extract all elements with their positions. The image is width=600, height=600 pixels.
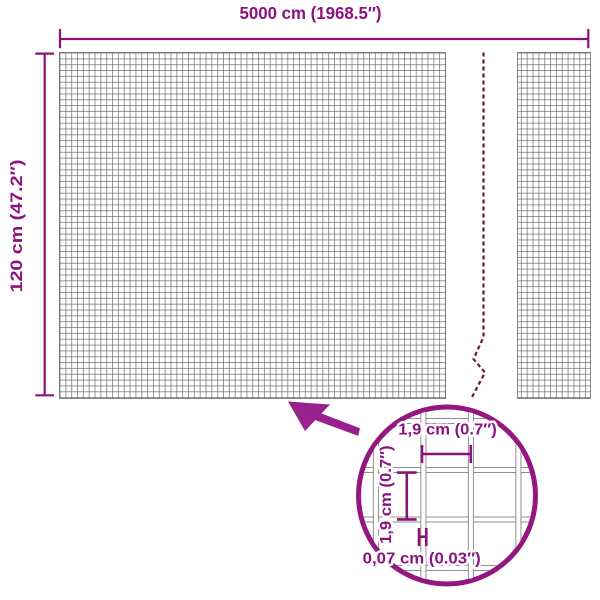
svg-text:1,9 cm (0.7″): 1,9 cm (0.7″) [378,445,395,544]
svg-text:120 cm (47.2″): 120 cm (47.2″) [8,160,26,293]
svg-text:5000 cm (1968.5″): 5000 cm (1968.5″) [240,3,382,23]
svg-text:1,9 cm (0.7″): 1,9 cm (0.7″) [398,422,497,439]
svg-text:0,07 cm (0.03″): 0,07 cm (0.03″) [363,550,481,567]
